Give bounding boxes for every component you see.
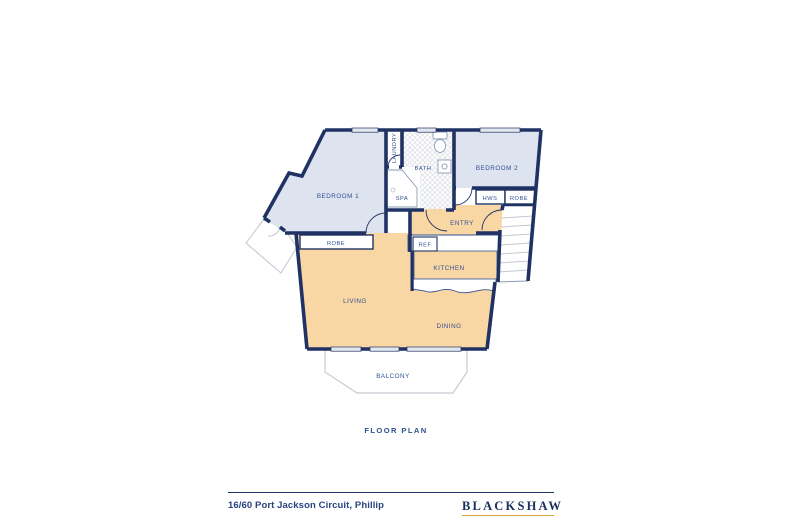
page-title: FLOOR PLAN — [364, 426, 427, 435]
basin — [442, 164, 447, 169]
living-label: LIVING — [343, 298, 367, 305]
robe-bed1-label: ROBE — [327, 241, 345, 247]
robe-hall-label: ROBE — [510, 196, 528, 202]
dining-label: DINING — [436, 323, 461, 330]
window-bottom-mid — [370, 347, 399, 351]
toilet-bowl — [435, 140, 446, 153]
footer-divider — [228, 492, 554, 493]
floor-plan-drawing: BEDROOM 1 BEDROOM 2 LAUNDRY BATH SPA HWS… — [0, 0, 790, 527]
hws-label: HWS — [483, 196, 498, 202]
window-bottom-left — [331, 347, 361, 351]
bedroom2-label: BEDROOM 2 — [476, 165, 518, 172]
kitchen-label: KITCHEN — [433, 265, 464, 272]
blackshaw-logo: BLACKSHAW — [462, 499, 554, 516]
bedroom1-label: BEDROOM 1 — [317, 193, 359, 200]
property-address: 16/60 Port Jackson Circuit, Phillip — [228, 500, 384, 511]
window-top-right — [480, 128, 520, 132]
window-top-left — [352, 128, 378, 132]
floor-plan-page: BEDROOM 1 BEDROOM 2 LAUNDRY BATH SPA HWS… — [0, 0, 790, 527]
kitchen-wall-stub — [411, 251, 414, 291]
toilet-cistern — [433, 132, 447, 139]
bath-label: BATH — [415, 166, 432, 172]
entry-label: ENTRY — [450, 220, 474, 227]
balcony-outline — [325, 350, 467, 393]
bedroom2-door — [455, 188, 472, 205]
balcony-door — [407, 347, 461, 351]
window-top-mid — [417, 128, 436, 132]
ref-label: REF — [419, 243, 432, 249]
spa-label: SPA — [396, 196, 408, 202]
laundry-label: LAUNDRY — [392, 133, 398, 164]
bedroom2-area — [455, 130, 541, 188]
balcony-label: BALCONY — [376, 373, 410, 380]
